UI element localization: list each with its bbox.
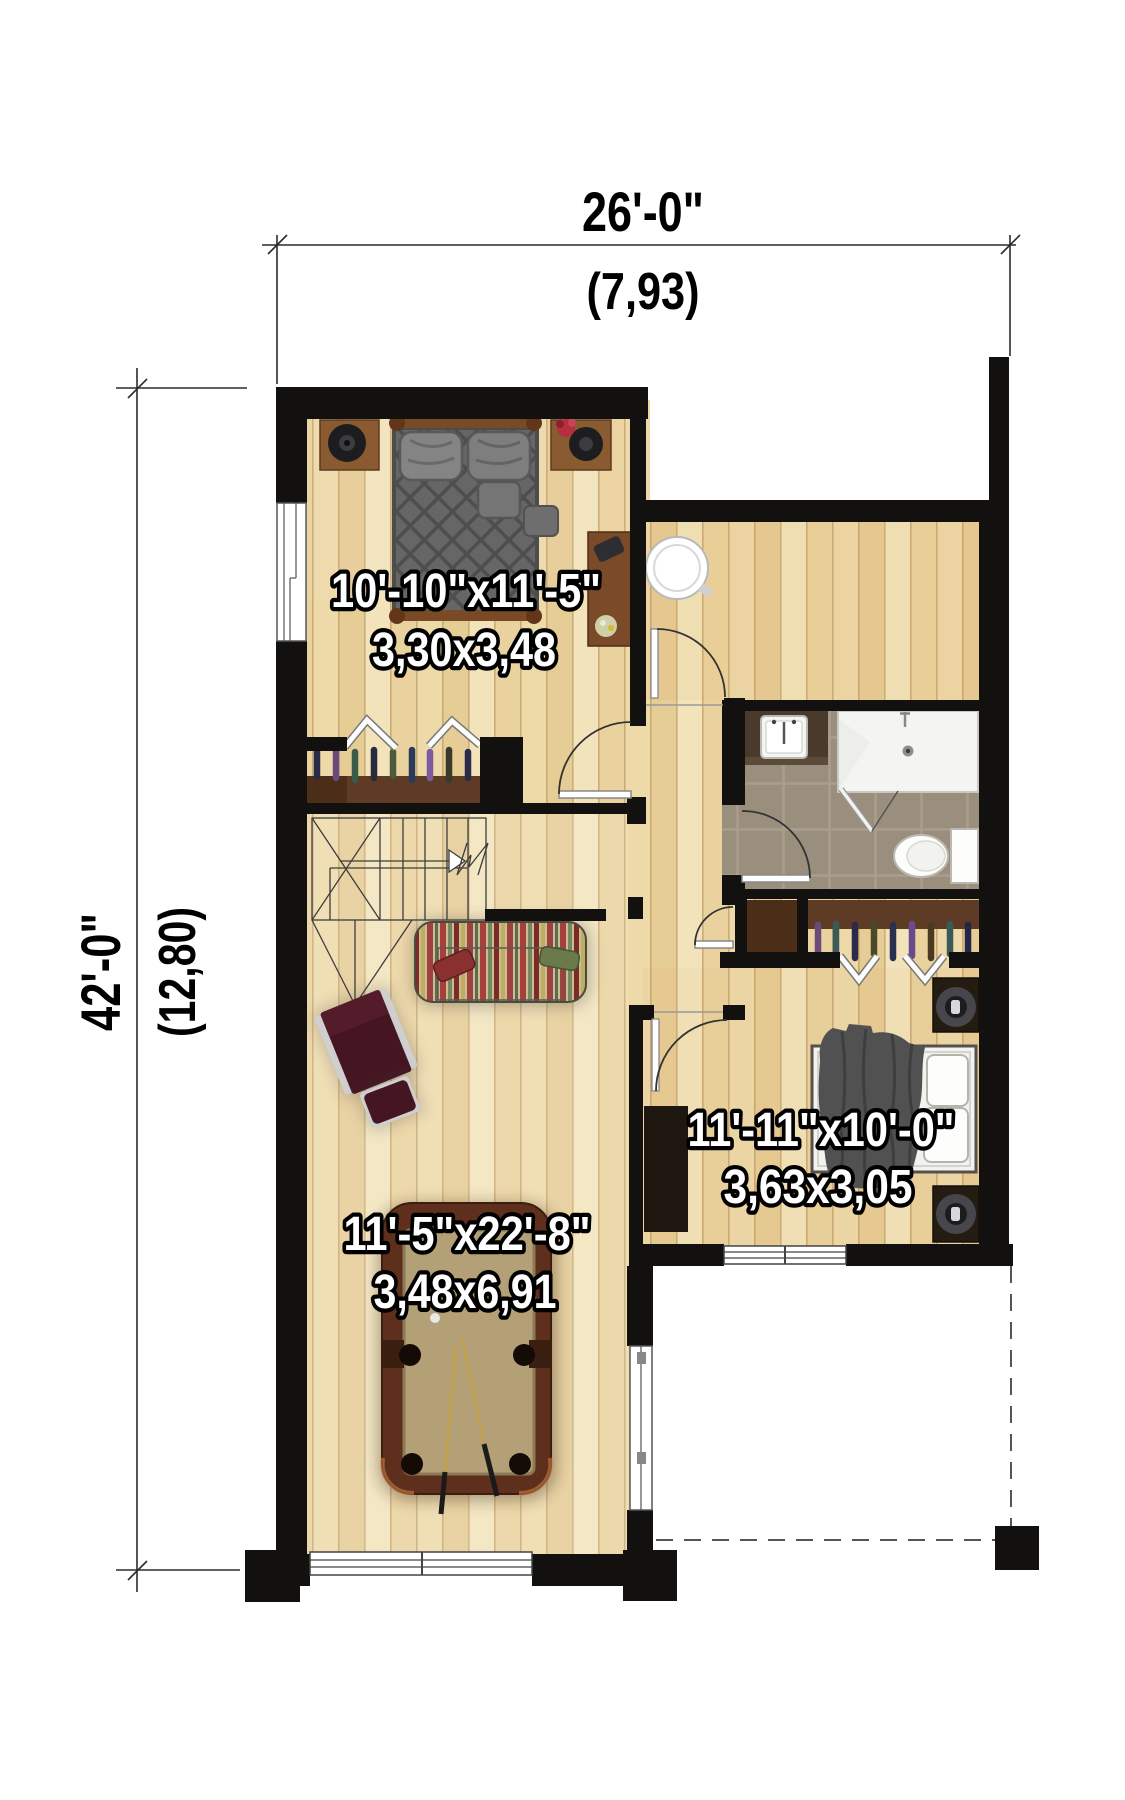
- svg-text:(7,93): (7,93): [587, 263, 700, 321]
- svg-text:3,30x3,48: 3,30x3,48: [372, 624, 556, 677]
- svg-text:26'-0": 26'-0": [582, 180, 704, 243]
- svg-text:10'-10"x11'-5": 10'-10"x11'-5": [331, 565, 601, 618]
- svg-text:11'-5"x22'-8": 11'-5"x22'-8": [344, 1208, 591, 1261]
- svg-text:(12,80): (12,80): [149, 907, 207, 1037]
- svg-text:3,63x3,05: 3,63x3,05: [724, 1161, 913, 1214]
- svg-text:11'-11"x10'-0": 11'-11"x10'-0": [688, 1104, 955, 1157]
- svg-text:3,48x6,91: 3,48x6,91: [374, 1266, 557, 1319]
- svg-text:42'-0": 42'-0": [69, 913, 132, 1031]
